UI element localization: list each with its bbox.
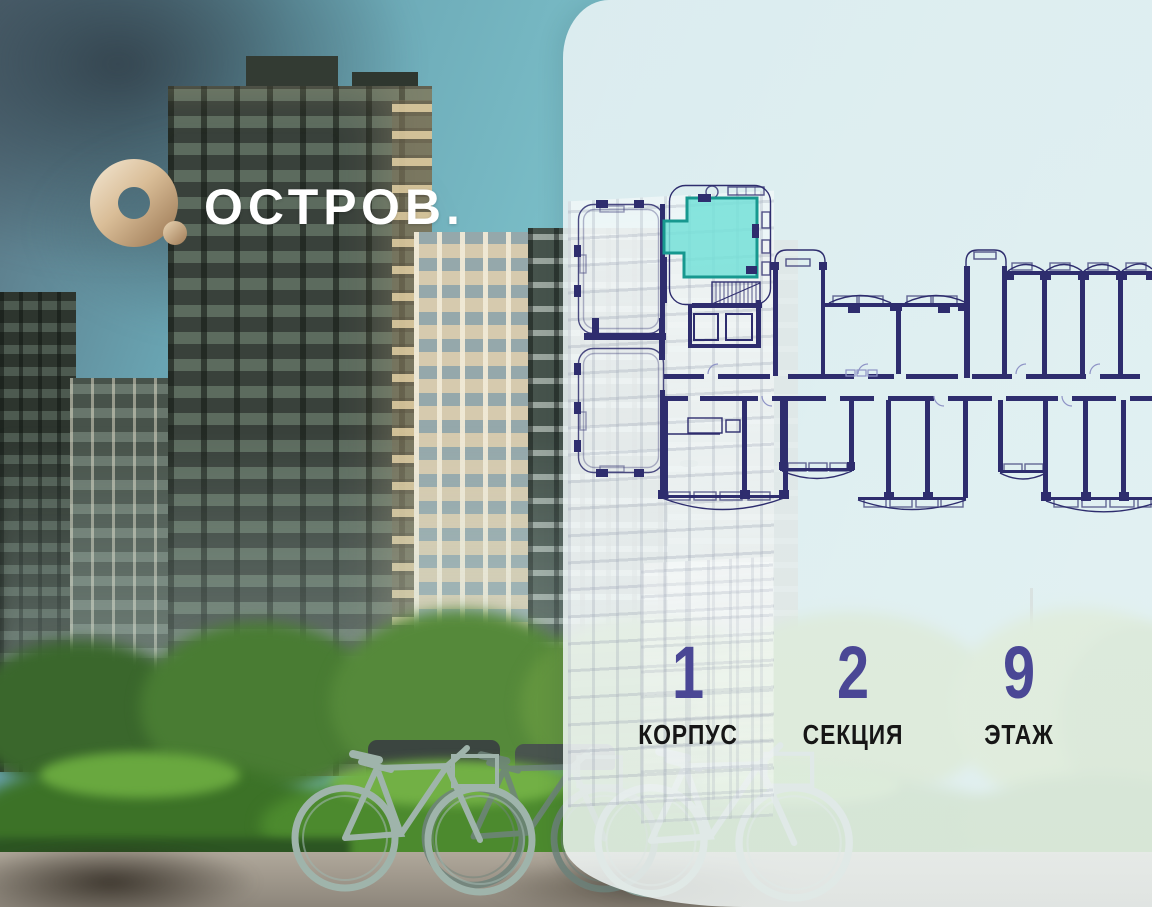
section-number: 2 СЕКЦИЯ [768, 636, 938, 751]
apartment-selector-card: ОСТРОВ. [0, 0, 1152, 907]
section-number-value: 2 [787, 636, 920, 710]
brand-wordmark: ОСТРОВ. [204, 182, 465, 232]
brand-logo[interactable]: ОСТРОВ. [86, 156, 506, 256]
floor-number: 9 ЭТАЖ [934, 636, 1104, 751]
floor-number-value: 9 [953, 636, 1086, 710]
building-number-value: 1 [622, 636, 755, 710]
floorplan-panel [563, 0, 1152, 907]
floor-number-label: ЭТАЖ [949, 719, 1088, 751]
building-number: 1 КОРПУС [603, 636, 773, 751]
building-number-label: КОРПУС [618, 719, 757, 751]
section-number-label: СЕКЦИЯ [783, 719, 922, 751]
